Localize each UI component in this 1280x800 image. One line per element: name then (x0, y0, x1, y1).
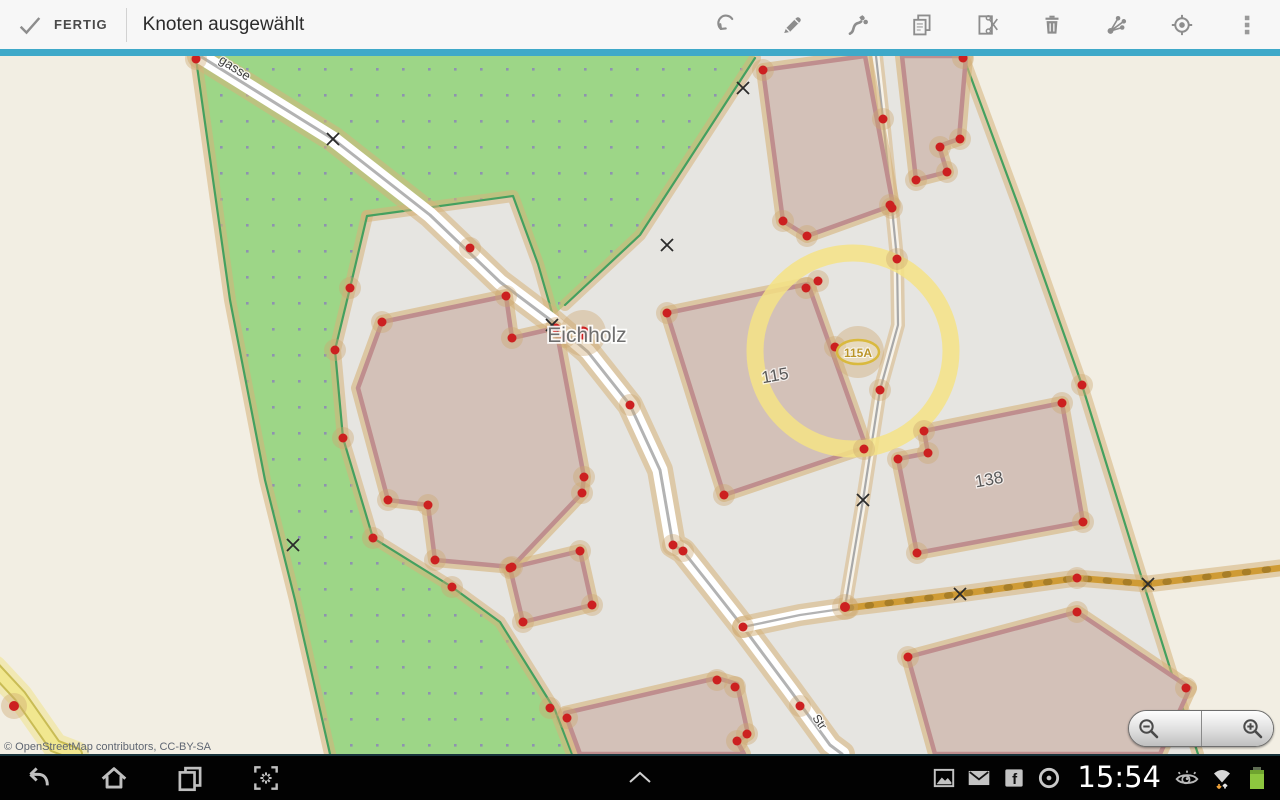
screenshot-button[interactable] (250, 762, 282, 794)
place-label: Eichholz (547, 324, 626, 347)
smart-stay-eye-icon (1174, 765, 1200, 791)
wifi-icon (1209, 765, 1235, 791)
gps-follow-button[interactable] (1168, 11, 1195, 38)
action-bar: FERTIG Knoten ausgewählt (0, 0, 1280, 56)
zoom-in-icon (1241, 717, 1265, 741)
screenshot-icon (250, 762, 282, 794)
housenumber-badge[interactable]: 115A (837, 340, 879, 364)
recent-apps-button[interactable] (174, 762, 206, 794)
zoom-control (1128, 710, 1274, 747)
cut-icon (974, 12, 1000, 38)
copy-button[interactable] (908, 11, 935, 38)
housenumber-badge-label: 115A (844, 346, 872, 360)
page-title: Knoten ausgewählt (127, 14, 305, 36)
overflow-menu-button[interactable] (1233, 11, 1260, 38)
checkmark-icon (16, 11, 44, 39)
undo-button[interactable] (713, 11, 740, 38)
relation-icon (1104, 12, 1130, 38)
back-button[interactable] (22, 762, 54, 794)
status-time[interactable]: 15:54 (1077, 760, 1161, 794)
home-button[interactable] (98, 762, 130, 794)
map-attribution: © OpenStreetMap contributors, CC-BY-SA (4, 741, 212, 753)
clock-icon (1036, 765, 1062, 791)
overflow-menu-icon (1234, 12, 1260, 38)
notification-tray-toggle[interactable] (622, 756, 658, 800)
relation-button[interactable] (1103, 11, 1130, 38)
email-notification[interactable] (966, 765, 992, 791)
cut-button[interactable] (973, 11, 1000, 38)
facebook-icon: f (1001, 765, 1027, 791)
email-icon (966, 765, 992, 791)
battery-status (1244, 765, 1270, 791)
battery-icon (1244, 765, 1270, 791)
smart-stay-indicator (1174, 765, 1200, 791)
gallery-icon (931, 765, 957, 791)
copy-icon (909, 12, 935, 38)
gallery-notification[interactable] (931, 765, 957, 791)
delete-button[interactable] (1038, 11, 1065, 38)
edit-tags-button[interactable] (778, 11, 805, 38)
tablet-screen: FERTIG Knoten ausgewählt (0, 0, 1280, 800)
recent-apps-icon (174, 762, 206, 794)
expand-tray-chevron-icon (622, 766, 658, 790)
gps-follow-icon (1169, 12, 1195, 38)
extract-node-button[interactable] (843, 11, 870, 38)
done-label: FERTIG (54, 17, 108, 32)
home-icon (98, 762, 130, 794)
facebook-notification[interactable]: f (1001, 765, 1027, 791)
zoom-in-button[interactable] (1202, 711, 1274, 746)
extract-node-icon (844, 12, 870, 38)
wifi-status (1209, 765, 1235, 791)
back-icon (22, 762, 54, 794)
zoom-out-icon (1137, 717, 1161, 741)
trash-icon (1039, 12, 1065, 38)
clock-notification[interactable] (1036, 765, 1062, 791)
done-button[interactable]: FERTIG (0, 0, 126, 49)
toolbar (713, 11, 1280, 38)
undo-icon (714, 12, 740, 38)
zoom-out-button[interactable] (1129, 711, 1202, 746)
map-canvas[interactable]: 115A Eichholz 115 138 gasse Str © OpenSt… (0, 56, 1280, 754)
system-navigation-bar: f 15:54 (0, 756, 1280, 800)
edit-tags-icon (779, 12, 805, 38)
